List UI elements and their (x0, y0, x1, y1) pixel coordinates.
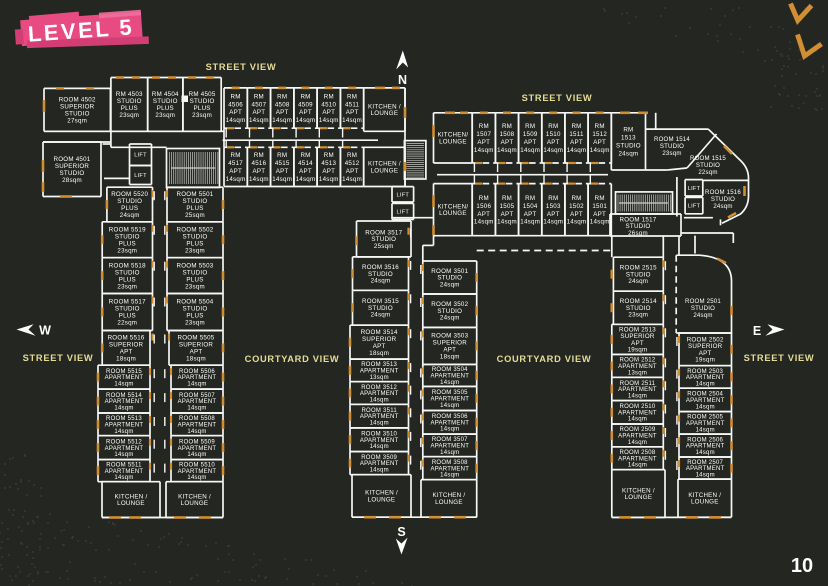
svg-text:N: N (398, 73, 407, 87)
svg-text:KITCHEN /LOUNGE: KITCHEN /LOUNGE (115, 493, 148, 507)
svg-text:KITCHEN /LOUNGE: KITCHEN /LOUNGE (368, 161, 401, 175)
svg-text:LIFT: LIFT (688, 186, 701, 192)
svg-text:E: E (753, 324, 761, 338)
svg-text:STREET VIEW: STREET VIEW (206, 62, 277, 72)
svg-text:10: 10 (791, 555, 813, 577)
svg-text:S: S (397, 525, 405, 539)
svg-text:KITCHEN/LOUNGE: KITCHEN/LOUNGE (437, 132, 468, 146)
svg-text:KITCHEN/LOUNGE: KITCHEN/LOUNGE (437, 203, 468, 217)
svg-text:LIFT: LIFT (397, 192, 410, 198)
svg-text:COURTYARD VIEW: COURTYARD VIEW (245, 354, 340, 364)
svg-text:COURTYARD VIEW: COURTYARD VIEW (497, 354, 592, 364)
svg-text:KITCHEN /LOUNGE: KITCHEN /LOUNGE (368, 103, 401, 117)
svg-text:STREET VIEW: STREET VIEW (522, 93, 593, 103)
svg-text:LIFT: LIFT (134, 173, 147, 179)
svg-text:RM 4505STUDIOPLUS23sqm: RM 4505STUDIOPLUS23sqm (189, 91, 216, 119)
svg-text:KITCHEN /LOUNGE: KITCHEN /LOUNGE (178, 493, 211, 507)
svg-text:LIFT: LIFT (688, 204, 701, 210)
svg-text:RM 4503STUDIOPLUS23sqm: RM 4503STUDIOPLUS23sqm (116, 91, 143, 119)
svg-text:RM 4504STUDIOPLUS23sqm: RM 4504STUDIOPLUS23sqm (152, 91, 179, 119)
svg-text:LIFT: LIFT (134, 153, 147, 159)
svg-text:STREET VIEW: STREET VIEW (744, 353, 815, 363)
svg-text:KITCHEN /LOUNGE: KITCHEN /LOUNGE (622, 487, 655, 501)
svg-text:STREET VIEW: STREET VIEW (23, 353, 94, 363)
svg-text:W: W (39, 324, 51, 338)
svg-text:KITCHEN /LOUNGE: KITCHEN /LOUNGE (365, 490, 398, 504)
svg-text:KITCHEN /LOUNGE: KITCHEN /LOUNGE (688, 492, 721, 506)
svg-text:KITCHEN /LOUNGE: KITCHEN /LOUNGE (432, 492, 465, 506)
svg-text:LIFT: LIFT (397, 209, 410, 215)
